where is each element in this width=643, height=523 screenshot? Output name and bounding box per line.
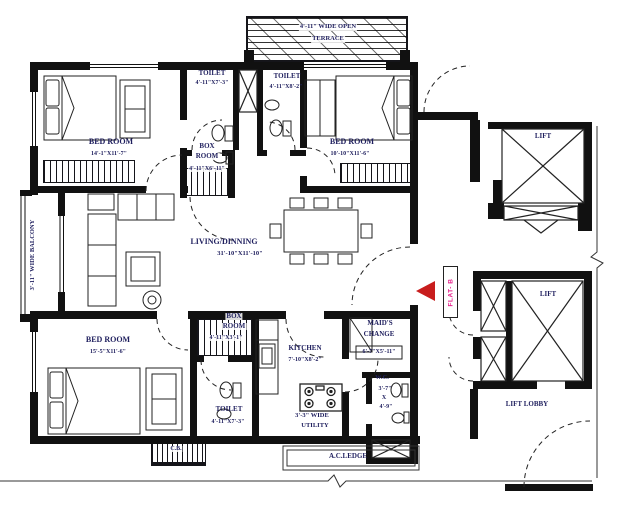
living-dining-label: LIVING/DINNING — [190, 238, 257, 246]
bedroom-top-left-label: BED ROOM — [89, 138, 133, 146]
couch-bottom — [146, 368, 182, 430]
living-dining-dims: 31'-10"X11'-10" — [217, 251, 263, 258]
kitchen-counter — [256, 320, 278, 394]
kitchen-label: KITCHEN — [288, 345, 321, 352]
lift-middle-shaft — [481, 281, 583, 381]
terrace-label-2: TERRACE — [311, 36, 345, 43]
cupboard-label: C.B. — [169, 446, 182, 452]
terrace-label: 4'-11" WIDE OPEN — [299, 24, 357, 31]
ac-ledge-label: A.C.LEDGE — [329, 453, 367, 460]
maids-change-label: MAID'S — [367, 320, 392, 327]
box-room-lower-label: BOX — [225, 313, 242, 320]
wc-dim-h: 4'-9" — [380, 404, 393, 410]
bedroom-bottom-dims: 15'-5"X11'-6" — [90, 349, 126, 355]
bedroom-top-right-label: BED ROOM — [330, 138, 374, 146]
toilet-top-left-dims: 4'-11"X7'-3" — [196, 80, 229, 86]
maids-change-label-2: CHANGE — [364, 331, 395, 338]
lift-top-label: LIFT — [535, 133, 551, 140]
box-room-upper-label-2: ROOM — [195, 153, 220, 160]
box-room-lower-label-2: ROOM — [222, 323, 247, 330]
cabinet-top-right — [305, 80, 335, 136]
sofa-set — [88, 194, 174, 309]
dining-table — [270, 198, 372, 264]
bed-bottom — [48, 368, 140, 434]
bed-top-right — [336, 76, 412, 140]
wc-dim-sep: X — [382, 395, 386, 401]
bed-top-left — [44, 76, 116, 140]
duct-shaft-top — [239, 70, 257, 112]
lift-top-shaft — [502, 129, 584, 233]
stove — [300, 384, 342, 411]
maids-change-dims: 6'-7"X5'-11" — [363, 349, 396, 355]
toilet-top-right-label: TOILET — [274, 73, 301, 80]
box-room-upper-label: BOX — [198, 143, 215, 150]
utility-label: 3'-3" WIDE — [295, 413, 329, 420]
lift-lobby-label: LIFT LOBBY — [506, 401, 548, 408]
entry-arrow-icon — [416, 281, 435, 301]
toilet-top-right-dims: 4'-11"X8'-2" — [270, 84, 303, 90]
lift-middle-label: LIFT — [540, 291, 556, 298]
flat-b-stamp: FLAT- B — [443, 266, 458, 318]
floorplan-linework — [0, 0, 643, 523]
bedroom-bottom-label: BED ROOM — [86, 336, 130, 344]
wc-dim-w: 3'-7" — [379, 386, 392, 392]
balcony-label: 3'-11" WIDE BALCONY — [30, 220, 37, 291]
floor-plan: 4'-11" WIDE OPEN TERRACE TOILET 4'-11"X7… — [0, 0, 643, 523]
toilet-bottom-fixtures — [217, 382, 241, 419]
couch-top-left — [120, 80, 150, 138]
windows — [21, 65, 386, 393]
toilet-top-left-label: TOILET — [199, 70, 226, 77]
kitchen-dims: 7'-10"X8'-2" — [288, 357, 321, 363]
box-room-upper-dims: 4'-11"X6'-11" — [188, 166, 226, 172]
flat-b-stamp-text: FLAT- B — [447, 278, 454, 306]
wc-label: W.C. — [375, 375, 389, 382]
box-room-lower-dims: 4'-11"X3'-1" — [209, 335, 244, 341]
toilet-bottom-label: TOILET — [216, 406, 243, 413]
utility-label-2: UTILITY — [301, 423, 328, 430]
toilet-bottom-dims: 4'-11"X7'-3" — [212, 419, 245, 425]
bedroom-top-right-dims: 10'-10"X11'-6" — [331, 151, 370, 157]
bedroom-top-left-dims: 14'-1"X11'-7" — [91, 151, 127, 157]
wc-fixtures — [391, 383, 409, 423]
